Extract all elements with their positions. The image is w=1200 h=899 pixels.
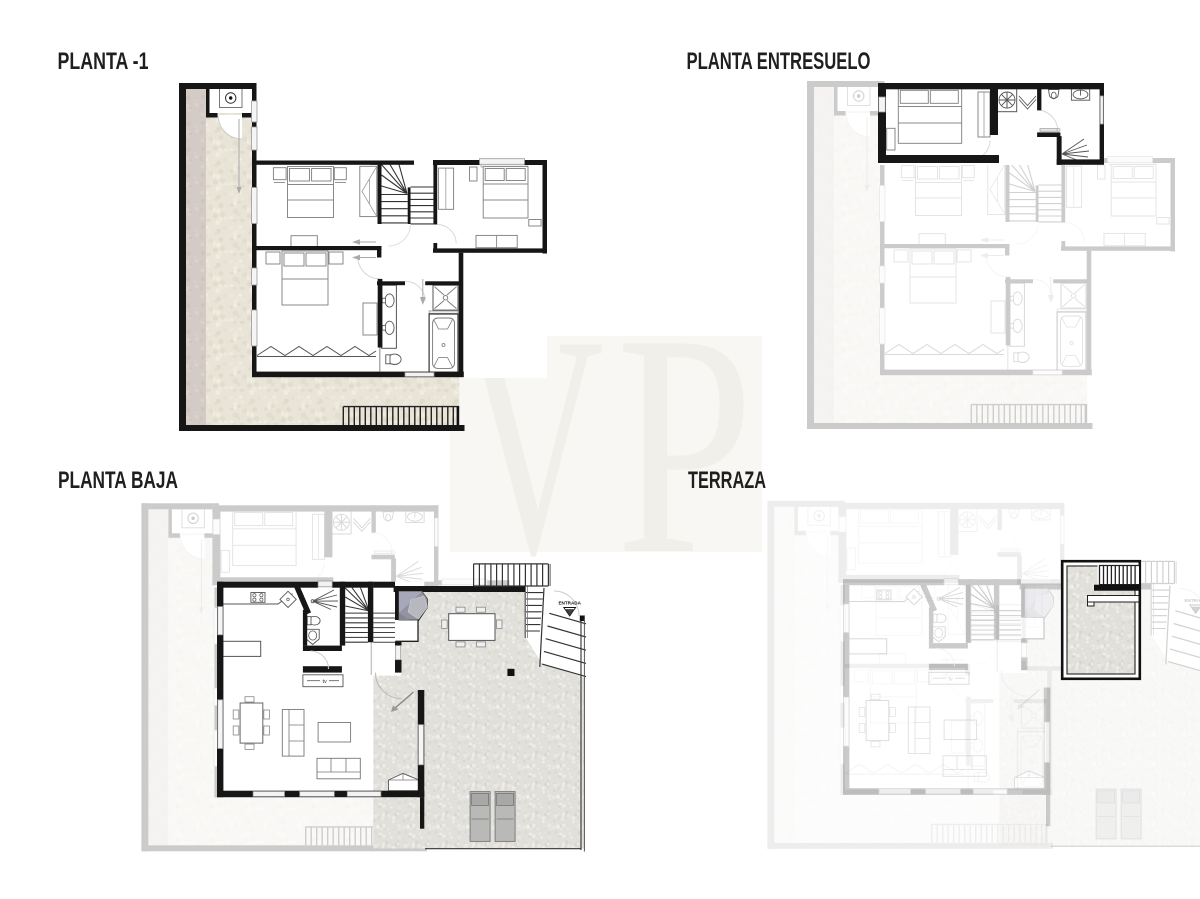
svg-text:PLANTA -1: PLANTA -1 [58,48,149,75]
svg-text:P: P [616,270,754,620]
svg-text:TERRAZA: TERRAZA [688,467,766,494]
svg-text:PLANTA ENTRESUELO: PLANTA ENTRESUELO [687,48,871,75]
svg-text:PLANTA BAJA: PLANTA BAJA [58,467,178,494]
